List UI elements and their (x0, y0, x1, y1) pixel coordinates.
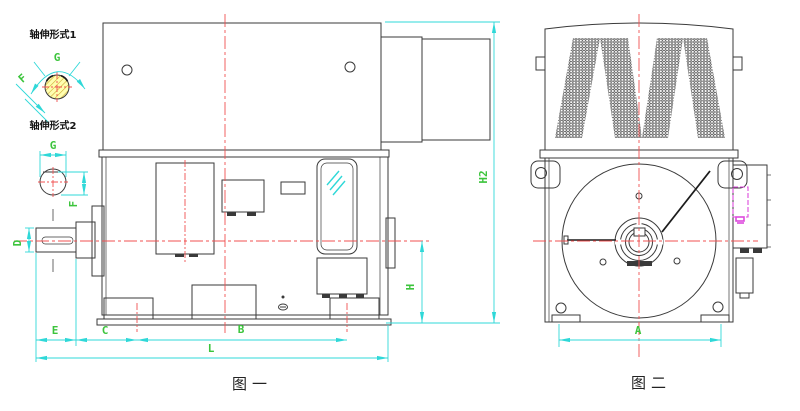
shaft-extension (36, 209, 95, 272)
base-box (192, 285, 256, 319)
drain-plug-icon (279, 296, 288, 311)
aux-box-side (736, 258, 753, 293)
terminal-box-flange (381, 37, 422, 142)
figure2-dimensions: A (559, 324, 721, 347)
dim-label-F1: F (16, 71, 30, 85)
caption-figure1: 图一 (232, 375, 272, 393)
motor-frame (102, 157, 388, 315)
figure1-side-view: E C B L H H2 D 图一 (11, 14, 500, 393)
dim-label-H: H (404, 284, 417, 291)
shaft-type2-title: 轴伸形式2 (30, 119, 77, 132)
foot-pad-left (552, 315, 580, 322)
terminal-box-side (733, 165, 767, 248)
aux-terminal-box (222, 180, 264, 212)
cooler-tube-bundle (600, 38, 642, 138)
dim-label-B: B (238, 323, 245, 336)
foot-right (330, 298, 379, 319)
keyway (42, 237, 73, 244)
dim-label-A: A (635, 324, 642, 337)
dim-label-G1: G (54, 51, 61, 64)
dim-label-E: E (52, 324, 59, 337)
cooler-tube-bundle (683, 38, 725, 138)
motor-outline-drawing: 轴伸形式1 G F 轴伸形式2 G F (0, 0, 800, 411)
foot-hole-right (713, 302, 723, 312)
dim-label-H2: H2 (477, 170, 490, 183)
hidden-component-magenta (733, 187, 748, 223)
cooler-hole-left (122, 65, 132, 75)
cooler-housing (103, 23, 381, 150)
bolt-hole (674, 258, 680, 264)
cooler-flange (99, 150, 389, 157)
dim-label-F2: F (67, 201, 80, 208)
caption-figure2: 图二 (631, 374, 671, 392)
nameplate (281, 182, 305, 194)
shaft-extension-type1-detail: 轴伸形式1 G F (16, 28, 85, 123)
terminal-box (422, 39, 490, 140)
dim-label-L: L (208, 342, 215, 355)
cooler-hole-right (345, 62, 355, 72)
dim-label-D: D (11, 239, 24, 246)
shaft-extension-type2-detail: 轴伸形式2 G F (30, 119, 88, 207)
dim-label-C: C (102, 324, 109, 337)
bearing-housing-right (386, 218, 395, 268)
dim-line-F1 (16, 84, 45, 113)
figure2-end-view: A 图二 (531, 14, 771, 392)
shaft-type1-title: 轴伸形式1 (30, 28, 77, 41)
foot-pad-right (701, 315, 729, 322)
dim-label-G2: G (50, 139, 57, 152)
engineering-drawing: 轴伸形式1 G F 轴伸形式2 G F (0, 0, 800, 411)
bolt-hole (600, 259, 606, 265)
hub-keyway (634, 228, 645, 236)
foot-hole-left (556, 303, 566, 313)
junction-box (317, 258, 367, 294)
cooler-tube-bundle (642, 38, 683, 138)
cooler-tube-bundle (555, 38, 600, 138)
foot-left (104, 298, 153, 319)
